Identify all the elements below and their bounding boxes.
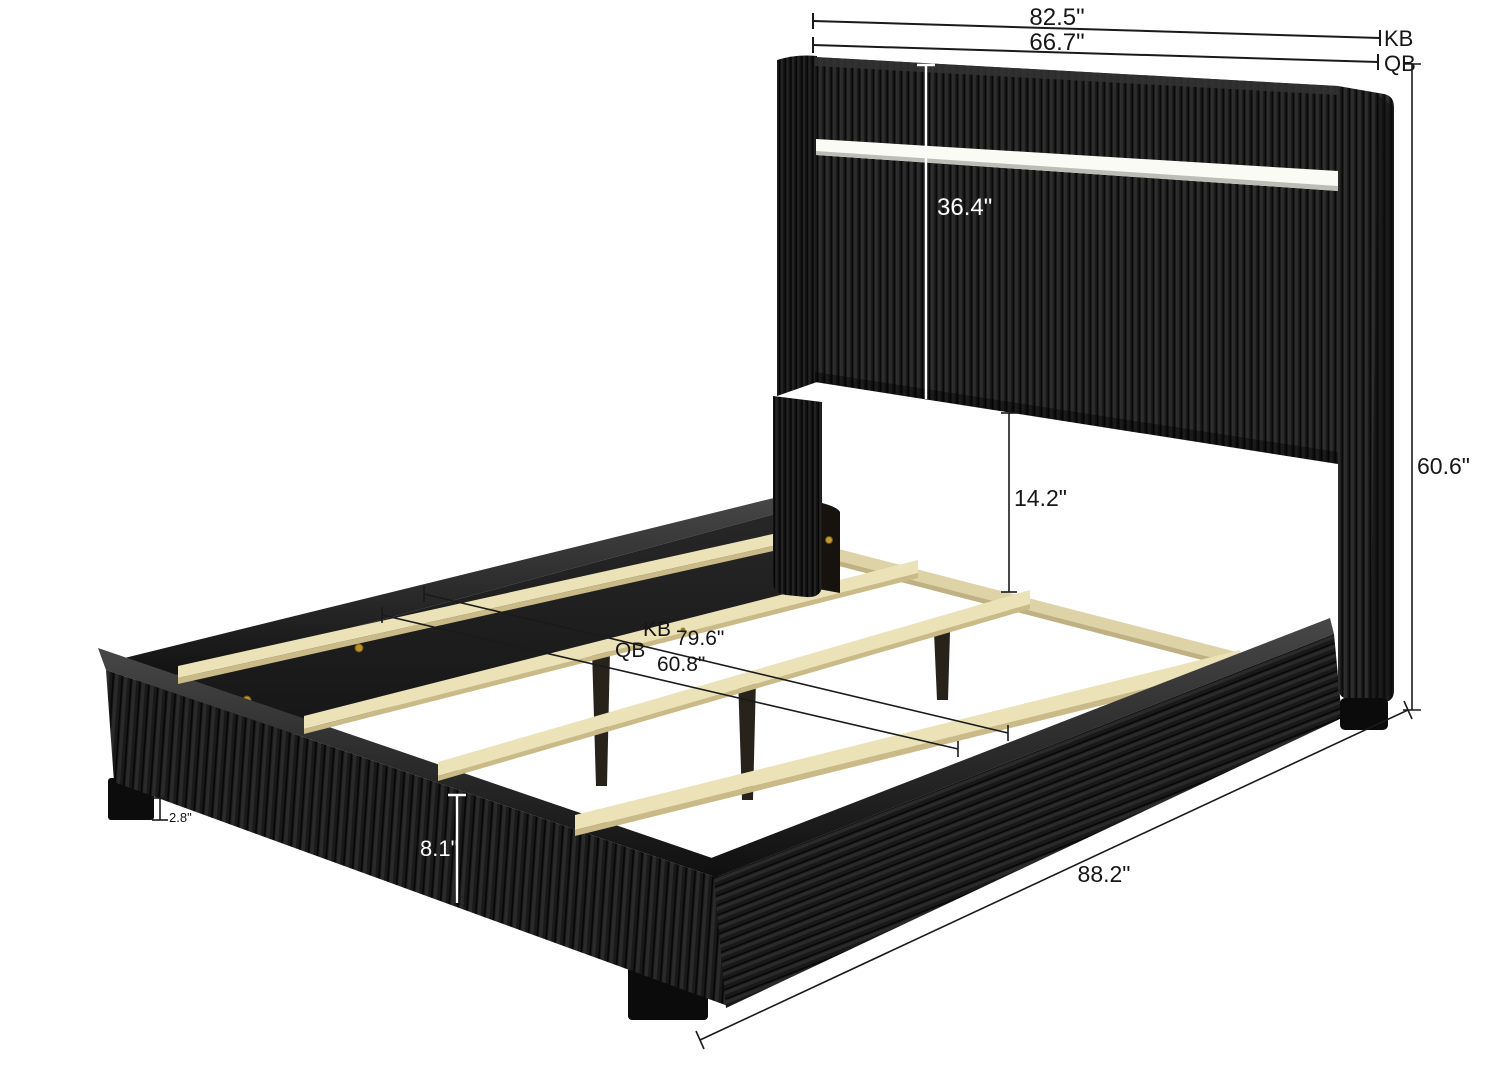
dim-clearance-label: 14.2" — [1014, 485, 1067, 511]
product-dimension-diagram: 82.5" KB 66.7" QB 36.4" 14.2" — [0, 0, 1500, 1072]
screw — [355, 644, 363, 652]
headboard-left-wing — [777, 56, 817, 397]
dim-queen-slat-tag: QB — [615, 639, 645, 662]
dim-leg-height-label: 2.8" — [169, 810, 192, 825]
screw — [826, 537, 833, 544]
headboard-foot — [1340, 698, 1388, 730]
dim-queen-width-label: 66.7" — [1029, 29, 1084, 56]
dim-headboard-height-label: 60.6" — [1417, 453, 1470, 479]
dim-queen-slat-label: 60.8" — [657, 653, 705, 676]
headboard-left-leg — [773, 396, 822, 597]
dim-rail-height-label: 8.1" — [420, 836, 458, 861]
dim-panel-height-label: 36.4" — [937, 194, 992, 221]
dim-king-width-tag: KB — [1384, 26, 1413, 51]
bed-frame-illustration: 82.5" KB 66.7" QB 36.4" 14.2" — [0, 0, 1500, 1072]
dim-king-width-label: 82.5" — [1029, 4, 1084, 31]
dim-king-slat-tag: KB — [643, 618, 671, 641]
dim-total-length-label: 88.2" — [1078, 861, 1131, 887]
dim-king-slat-label: 79.6" — [676, 627, 724, 650]
